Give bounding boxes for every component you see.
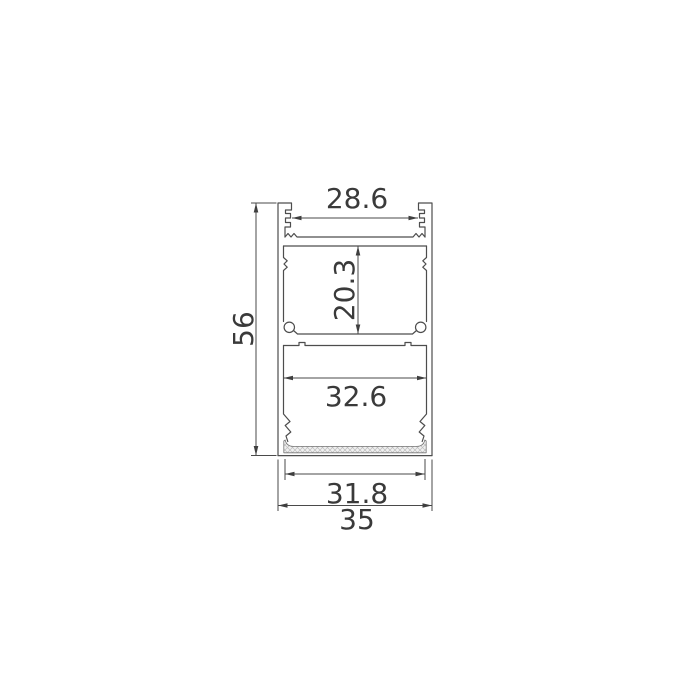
arrowhead-left-icon — [284, 376, 294, 381]
dimension-overall-height: 56 — [227, 203, 277, 456]
arrowhead-up-icon — [356, 246, 361, 256]
arrowhead-down-icon — [254, 446, 259, 456]
arrowhead-right-icon — [417, 376, 427, 381]
arrowhead-right-icon — [409, 216, 419, 221]
arrowhead-left-icon — [285, 472, 295, 477]
dimension-upper-cavity-height: 20.3 — [328, 246, 361, 334]
arrowhead-up-icon — [254, 203, 259, 213]
arrowhead-down-icon — [356, 325, 361, 335]
mid-chamber-floor — [294, 331, 417, 335]
lower-chamber-right-wall — [419, 346, 426, 442]
dim-label-top-opening: 28.6 — [326, 182, 388, 215]
upper-chamber-floor — [285, 234, 425, 238]
arrowhead-right-icon — [423, 503, 433, 508]
arrowhead-right-icon — [416, 472, 426, 477]
mid-chamber-right-wall — [423, 246, 427, 322]
right-screw-boss-icon — [416, 322, 426, 332]
profile-drawing-canvas: 28.6 20.3 56 32.6 31.8 35 — [0, 0, 700, 700]
dim-label-upper-cavity-height: 20.3 — [328, 259, 361, 321]
diffuser-cover — [284, 440, 426, 453]
dim-label-overall-width: 35 — [339, 503, 375, 536]
arrowhead-left-icon — [292, 216, 302, 221]
lower-chamber-ceiling — [284, 343, 427, 346]
drawing-page: 28.6 20.3 56 32.6 31.8 35 — [0, 0, 700, 700]
profile-outline — [278, 203, 432, 456]
dimension-top-opening: 28.6 — [292, 182, 418, 220]
dim-label-overall-height: 56 — [227, 311, 260, 347]
dimension-lower-cavity-width: 32.6 — [284, 376, 427, 413]
dim-label-lower-cavity-width: 32.6 — [325, 380, 387, 413]
lower-chamber-left-wall — [284, 346, 291, 442]
arrowhead-left-icon — [278, 503, 288, 508]
mid-chamber-left-wall — [284, 246, 288, 322]
left-screw-boss-icon — [284, 322, 294, 332]
